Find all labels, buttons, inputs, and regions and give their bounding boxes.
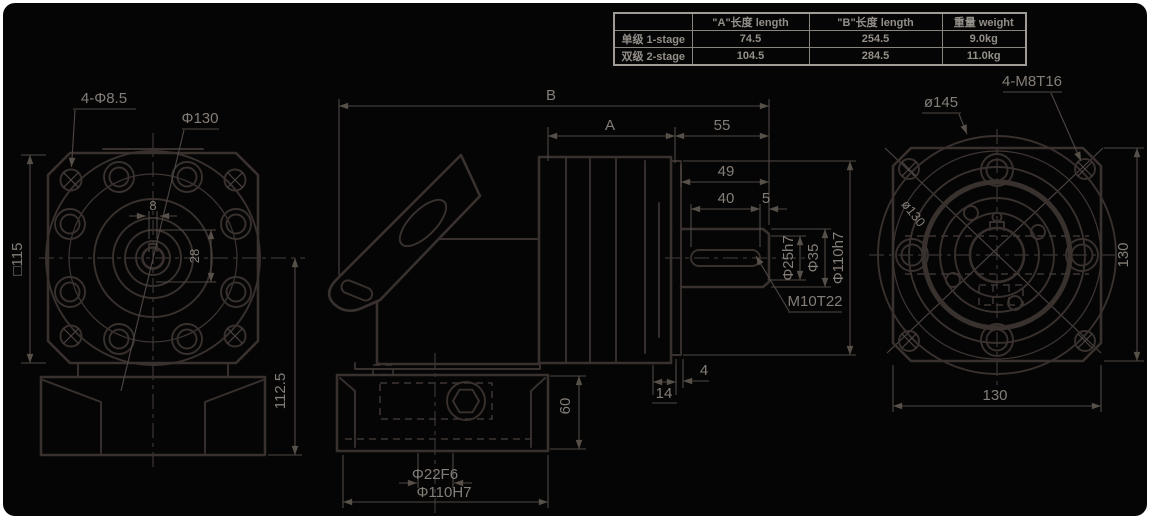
dim-side-49: 49	[718, 163, 735, 180]
spec-weight-value: 11.0kg	[942, 48, 1026, 66]
spec-header-row: "A"长度 length "B"长度 length 重量 weight	[614, 13, 1026, 31]
dim-front-key-width: 8	[149, 198, 156, 213]
spec-b-value: 284.5	[809, 48, 942, 66]
side-gear-body	[539, 157, 671, 363]
side-view: B A 55 49 40 5 Φ25h7 Φ35 Φ110h7 M10T22 4	[329, 87, 856, 515]
gearbox-drawing: 4-Φ8.5 Φ130 8 28 □115 112.5	[3, 3, 1147, 516]
spec-header-model	[614, 13, 692, 31]
dim-back-height: 130	[1115, 242, 1132, 267]
dim-side-pilot-dia: Φ110h7	[830, 232, 847, 285]
side-adapter-hole	[393, 193, 454, 254]
dim-side-40: 40	[718, 190, 735, 207]
dim-side-input-bore: Φ22F6	[412, 466, 458, 483]
side-base-hidden-boss	[373, 365, 393, 375]
side-body-ribs	[566, 157, 659, 363]
dim-side-base-height: 60	[557, 398, 574, 415]
drawing-sheet: 4-Φ8.5 Φ130 8 28 □115 112.5	[3, 3, 1147, 516]
side-plug-hex	[453, 390, 479, 413]
side-base-hidden-pocket	[380, 383, 492, 419]
dim-back-outer-dia: ø145	[924, 94, 958, 111]
dim-side-shaft-dia: Φ25h7	[780, 235, 797, 280]
dim-side-flange-gap: 4	[700, 362, 708, 379]
dim-side-overall-b: B	[546, 87, 556, 104]
dim-front-bolt-circle: Φ130	[182, 110, 219, 127]
dim-side-flange-thickness: 14	[656, 385, 673, 402]
spec-a-value: 74.5	[692, 31, 809, 48]
dim-side-5: 5	[762, 190, 770, 207]
dim-back-width: 130	[982, 387, 1007, 404]
dim-front-center-to-base: 112.5	[272, 373, 289, 409]
dim-side-55: 55	[714, 117, 731, 134]
spec-weight-value: 9.0kg	[942, 31, 1026, 48]
spec-header-a-length: "A"长度 length	[692, 13, 809, 31]
dim-side-input-pilot: Φ110H7	[416, 484, 471, 501]
side-lower-housing	[377, 301, 539, 364]
dim-side-stage-a: A	[605, 117, 615, 134]
spec-table: "A"长度 length "B"长度 length 重量 weight 单级 1…	[613, 12, 1027, 66]
dim-side-collar-dia: Φ35	[805, 244, 822, 273]
dim-front-corner-holes: 4-Φ8.5	[81, 90, 127, 107]
spec-row-1stage: 单级 1-stage 74.5 254.5 9.0kg	[614, 31, 1026, 48]
spec-b-value: 254.5	[809, 31, 942, 48]
spec-row-label: 单级 1-stage	[614, 31, 692, 48]
dim-side-shaft-tap: M10T22	[787, 293, 842, 310]
side-base-inner	[340, 378, 545, 447]
spec-row-label: 双级 2-stage	[614, 48, 692, 66]
dim-front-key-height: 28	[187, 249, 202, 263]
front-view: 4-Φ8.5 Φ130 8 28 □115 112.5	[9, 90, 305, 471]
back-view: ø145 4-M8T16 ø130 130 130	[869, 73, 1144, 412]
side-adapter-slot	[340, 278, 375, 302]
spec-header-b-length: "B"长度 length	[809, 13, 942, 31]
spec-a-value: 104.5	[692, 48, 809, 66]
dim-front-square: □115	[9, 243, 26, 276]
spec-row-2stage: 双级 2-stage 104.5 284.5 11.0kg	[614, 48, 1026, 66]
spec-header-weight: 重量 weight	[942, 13, 1026, 31]
side-diagonal-adapter	[329, 155, 480, 311]
dim-back-corner-taps: 4-M8T16	[1002, 73, 1062, 90]
dim-back-bolt-circle: ø130	[899, 197, 929, 230]
